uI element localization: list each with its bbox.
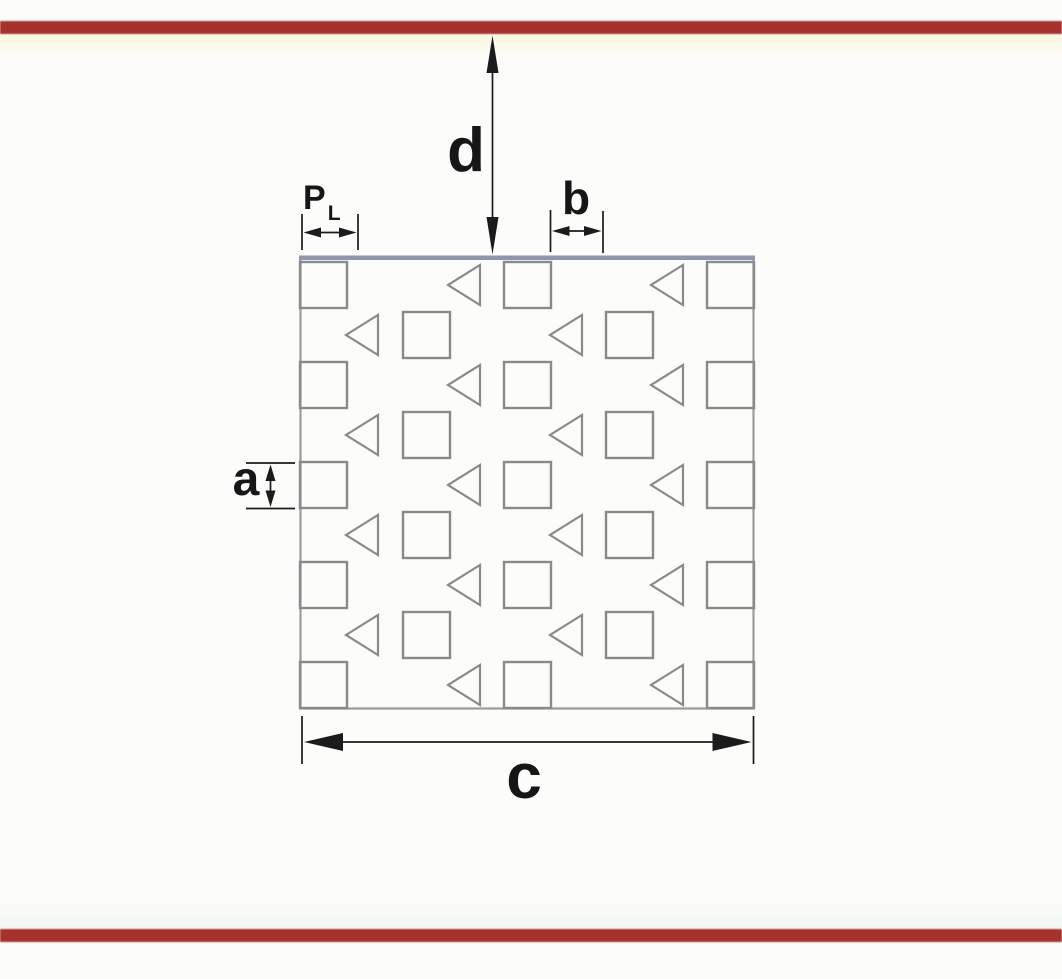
pattern-triangle-left [448, 665, 480, 705]
pattern-triangle-left [448, 465, 480, 505]
pattern-square [403, 412, 450, 458]
arrowhead-up [266, 465, 276, 482]
pattern-triangle-left [651, 265, 683, 305]
arrowhead-right [584, 226, 602, 236]
dimension-label-pl-main: P [303, 181, 326, 215]
arrowhead-left [304, 228, 322, 238]
dimension-label-pl-subscript: L [328, 203, 341, 224]
pattern-square [504, 262, 551, 308]
arrowhead-right [339, 228, 357, 238]
dimension-label-c: c [506, 744, 542, 808]
pattern-square [300, 662, 347, 708]
diagram-svg [0, 0, 1062, 979]
pattern-triangle-left [550, 415, 582, 455]
arrowhead-right [713, 733, 752, 751]
pattern-square [504, 462, 551, 508]
pattern-square [403, 612, 450, 658]
dimension-label-pl: P L [303, 181, 341, 215]
arrowhead-left [552, 226, 570, 236]
dimension-label-b: b [562, 175, 590, 221]
pattern-triangle-left [651, 465, 683, 505]
pattern-triangle-left [651, 565, 683, 605]
pattern-square [300, 462, 347, 508]
arrowhead-up [487, 36, 499, 74]
pattern-triangle-left [346, 315, 378, 355]
pattern-triangle-left [550, 615, 582, 655]
pattern-square [300, 262, 347, 308]
pattern-triangle-left [448, 565, 480, 605]
pattern-square [707, 262, 754, 308]
pattern-triangle-left [448, 265, 480, 305]
pattern-triangle-left [346, 415, 378, 455]
plate-top-edge-line [299, 256, 755, 261]
pattern-square [606, 612, 653, 658]
arrowhead-left [304, 733, 343, 751]
pattern-square [707, 662, 754, 708]
pattern-triangle-left [346, 615, 378, 655]
dimension-label-d: d [447, 120, 485, 182]
pattern-square [707, 462, 754, 508]
pattern-square [707, 362, 754, 408]
pattern-square [707, 562, 754, 608]
pattern-square [300, 362, 347, 408]
pattern-square [300, 562, 347, 608]
pattern-square [606, 512, 653, 558]
pattern-square [504, 662, 551, 708]
arrowhead-down [487, 217, 499, 255]
pattern-square [504, 562, 551, 608]
pattern-grid [300, 262, 754, 708]
pattern-triangle-left [651, 665, 683, 705]
pattern-square [403, 312, 450, 358]
pattern-square [403, 512, 450, 558]
pattern-triangle-left [651, 365, 683, 405]
pattern-square [504, 362, 551, 408]
dimension-d [487, 36, 499, 255]
arrowhead-down [266, 491, 276, 508]
pattern-square [606, 412, 653, 458]
pattern-triangle-left [550, 515, 582, 555]
pattern-triangle-left [550, 315, 582, 355]
pattern-square [606, 312, 653, 358]
pattern-triangle-left [346, 515, 378, 555]
dimension-label-a: a [233, 456, 260, 504]
plate-boundary [300, 259, 755, 709]
pattern-triangle-left [448, 365, 480, 405]
figure-canvas: d P L b a c [0, 0, 1062, 979]
